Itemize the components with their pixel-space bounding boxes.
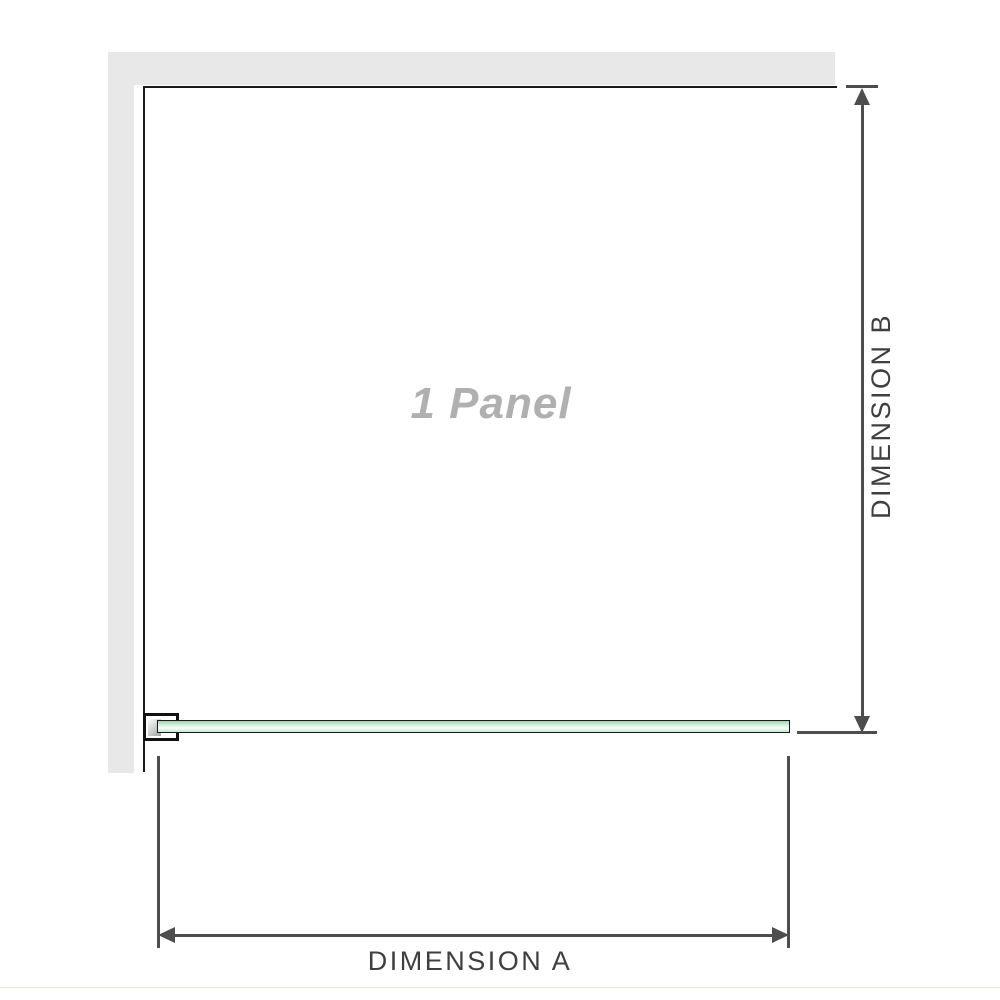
dim-b-label: DIMENSION B xyxy=(866,306,894,526)
dim-b-line xyxy=(861,100,864,720)
dim-a-label: DIMENSION A xyxy=(170,946,770,977)
dim-a-right-extension-line xyxy=(787,756,790,948)
dim-b-arrow-up-icon xyxy=(854,88,870,105)
dim-a-line xyxy=(170,934,777,937)
panel-area: 1 Panel xyxy=(145,88,837,720)
bottom-divider-line xyxy=(0,987,1000,988)
wall-band-left xyxy=(108,52,134,773)
dim-b-arrow-down-icon xyxy=(854,716,870,733)
wall-band-top xyxy=(108,52,835,85)
diagram-canvas: 1 Panel DIMENSION B DIMENSION A xyxy=(0,0,1000,1000)
panel-label: 1 Panel xyxy=(410,379,571,429)
dim-a-arrow-right-icon xyxy=(772,927,789,943)
dim-a-left-extension-line xyxy=(157,756,160,948)
dim-a-arrow-left-icon xyxy=(158,927,175,943)
glass-panel-bar xyxy=(157,720,790,733)
